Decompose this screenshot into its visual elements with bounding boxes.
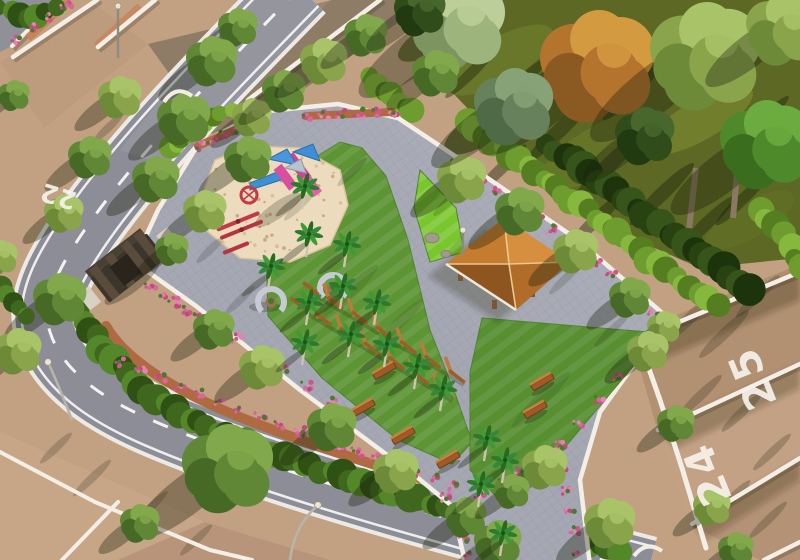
circle-shape [375, 300, 379, 304]
circle-shape [183, 104, 199, 120]
circle-shape [353, 114, 356, 117]
circle-shape [736, 539, 747, 550]
circle-shape [303, 340, 307, 344]
circle-shape [561, 486, 564, 489]
circle-shape [371, 454, 374, 457]
circle-shape [118, 364, 122, 368]
circle-shape [195, 392, 198, 395]
circle-shape [576, 238, 590, 252]
circle-shape [605, 273, 608, 276]
circle-shape [227, 442, 255, 470]
circle-shape [234, 408, 237, 411]
circle-shape [262, 354, 276, 368]
circle-shape [630, 285, 643, 298]
circle-shape [601, 397, 607, 403]
circle-shape [63, 7, 67, 11]
circle-shape [303, 184, 307, 188]
circle-shape [479, 482, 483, 486]
circle-shape [14, 86, 24, 96]
circle-shape [271, 194, 275, 198]
circle-shape [182, 305, 186, 309]
circle-shape [248, 146, 262, 160]
circle-shape [307, 300, 311, 304]
circle-shape [235, 214, 239, 218]
scene-svg: 22 25 24 [0, 0, 800, 560]
circle-shape [191, 143, 194, 146]
circle-shape [374, 113, 379, 118]
circle-shape [644, 119, 662, 137]
circle-shape [676, 413, 687, 424]
circle-shape [257, 416, 261, 420]
circle-shape [352, 449, 355, 452]
circle-shape [375, 452, 380, 457]
circle-shape [162, 378, 168, 384]
circle-shape [391, 110, 396, 115]
circle-shape [239, 335, 244, 340]
circle-shape [561, 492, 564, 495]
circle-shape [650, 311, 654, 315]
circle-shape [302, 425, 307, 430]
circle-shape [114, 361, 117, 364]
circle-shape [415, 364, 419, 368]
circle-shape [460, 227, 466, 233]
circle-shape [284, 369, 289, 374]
circle-shape [157, 373, 161, 377]
circle-shape [263, 238, 267, 242]
circle-shape [706, 293, 730, 317]
circle-shape [64, 3, 68, 7]
circle-shape [568, 529, 571, 532]
circle-shape [270, 233, 273, 236]
circle-shape [512, 481, 523, 492]
circle-shape [280, 426, 285, 431]
circle-shape [485, 436, 489, 440]
circle-shape [18, 338, 32, 352]
circle-shape [142, 368, 148, 374]
circle-shape [156, 166, 170, 180]
circle-shape [440, 494, 443, 497]
circle-shape [120, 85, 133, 98]
circle-shape [436, 60, 450, 74]
circle-shape [377, 109, 382, 114]
circle-shape [158, 294, 162, 298]
circle-shape [545, 454, 559, 468]
circle-shape [296, 431, 300, 435]
circle-shape [117, 360, 121, 364]
circle-shape [304, 112, 308, 116]
circle-shape [597, 397, 601, 401]
circle-shape [45, 17, 49, 21]
circle-shape [253, 412, 256, 415]
circle-shape [307, 232, 311, 236]
circle-shape [303, 386, 307, 390]
circle-shape [577, 420, 581, 424]
circle-shape [273, 420, 276, 423]
circle-shape [444, 497, 449, 502]
circle-shape [447, 482, 450, 485]
circle-shape [441, 386, 445, 390]
circle-shape [308, 116, 313, 121]
circle-shape [385, 342, 389, 346]
circle-shape [321, 161, 325, 165]
circle-shape [331, 175, 335, 179]
circle-shape [144, 286, 147, 289]
circle-shape [341, 284, 345, 288]
circle-shape [263, 201, 266, 204]
circle-shape [161, 372, 166, 377]
rect-shape [492, 300, 497, 309]
circle-shape [300, 381, 303, 384]
circle-shape [359, 453, 364, 458]
circle-shape [332, 172, 335, 175]
circle-shape [350, 446, 353, 449]
circle-shape [564, 508, 567, 511]
circle-shape [447, 488, 450, 491]
circle-shape [360, 106, 366, 112]
circle-shape [493, 186, 497, 190]
circle-shape [733, 273, 766, 306]
circle-shape [115, 3, 121, 9]
circle-shape [193, 312, 197, 316]
circle-shape [664, 318, 674, 328]
circle-shape [136, 369, 140, 373]
circle-shape [430, 479, 434, 483]
circle-shape [206, 141, 210, 145]
circle-shape [59, 4, 62, 7]
circle-shape [268, 298, 274, 304]
circle-shape [182, 311, 186, 315]
circle-shape [212, 106, 228, 122]
circle-shape [60, 7, 63, 10]
circle-shape [167, 300, 170, 303]
circle-shape [560, 440, 565, 445]
circle-shape [594, 395, 598, 399]
circle-shape [264, 250, 267, 253]
circle-shape [302, 113, 306, 117]
circle-shape [195, 146, 199, 150]
circle-shape [296, 219, 298, 221]
circle-shape [223, 193, 226, 196]
circle-shape [288, 249, 290, 251]
circle-shape [59, 284, 75, 300]
circle-shape [265, 235, 269, 239]
circle-shape [30, 28, 34, 32]
circle-shape [322, 214, 325, 217]
circle-shape [572, 525, 576, 529]
circle-shape [572, 422, 575, 425]
circle-shape [332, 413, 347, 428]
circle-shape [172, 240, 182, 250]
circle-shape [261, 414, 266, 419]
circle-shape [609, 508, 625, 524]
circle-shape [462, 165, 477, 180]
circle-shape [144, 282, 147, 285]
circle-shape [269, 264, 273, 268]
circle-shape [611, 274, 615, 278]
circle-shape [464, 539, 469, 544]
circle-shape [340, 114, 345, 119]
rock [425, 233, 439, 243]
circle-shape [345, 242, 349, 246]
circle-shape [253, 243, 257, 247]
circle-shape [282, 246, 286, 250]
circle-shape [140, 512, 152, 524]
circle-shape [565, 489, 570, 494]
circle-shape [48, 18, 52, 22]
circle-shape [315, 165, 318, 168]
circle-shape [322, 199, 325, 202]
circle-shape [175, 385, 178, 388]
circle-shape [765, 118, 793, 146]
circle-shape [147, 286, 151, 290]
circle-shape [434, 472, 439, 477]
circle-shape [237, 406, 241, 410]
circle-shape [319, 115, 323, 119]
circle-shape [154, 376, 157, 379]
circle-shape [336, 112, 339, 115]
circle-shape [45, 359, 52, 366]
circle-shape [234, 332, 238, 336]
circle-shape [17, 35, 22, 40]
circle-shape [14, 41, 18, 45]
circle-shape [326, 115, 332, 121]
circle-shape [597, 33, 632, 68]
circle-shape [330, 396, 335, 401]
circle-shape [245, 221, 247, 223]
circle-shape [171, 296, 175, 300]
circle-shape [29, 25, 33, 29]
circle-shape [315, 502, 322, 509]
circle-shape [214, 317, 227, 330]
circle-shape [10, 39, 13, 42]
circle-shape [339, 201, 342, 204]
circle-shape [342, 108, 347, 113]
circle-shape [134, 371, 137, 374]
circle-shape [197, 395, 201, 399]
circle-shape [349, 332, 353, 336]
circle-shape [554, 440, 557, 443]
circle-shape [200, 388, 205, 393]
circle-shape [501, 531, 505, 535]
circle-shape [515, 467, 518, 470]
rock [441, 251, 451, 258]
circle-shape [396, 458, 410, 472]
circle-shape [90, 145, 103, 158]
circle-shape [211, 46, 227, 62]
circle-shape [293, 173, 295, 175]
aerial-site-render: 22 25 24 [0, 0, 800, 560]
circle-shape [179, 383, 183, 387]
circle-shape [307, 387, 312, 392]
circle-shape [242, 232, 246, 236]
circle-shape [369, 457, 372, 460]
circle-shape [238, 16, 250, 28]
circle-shape [594, 401, 598, 405]
circle-shape [493, 191, 497, 195]
circle-shape [121, 356, 126, 361]
circle-shape [371, 108, 375, 112]
circle-shape [356, 450, 360, 454]
circle-shape [294, 428, 297, 431]
circle-shape [321, 110, 325, 114]
circle-shape [503, 458, 507, 462]
circle-shape [308, 380, 313, 385]
circle-shape [514, 471, 517, 474]
circle-shape [174, 304, 179, 309]
circle-shape [249, 241, 251, 243]
circle-shape [454, 481, 459, 486]
circle-shape [648, 339, 661, 352]
circle-shape [205, 199, 218, 212]
circle-shape [0, 247, 10, 258]
circle-shape [440, 499, 443, 502]
circle-shape [572, 509, 577, 514]
circle-shape [551, 223, 556, 228]
circle-shape [275, 244, 279, 248]
circle-shape [234, 337, 238, 341]
circle-shape [520, 197, 535, 212]
circle-shape [359, 112, 364, 117]
circle-shape [570, 531, 574, 535]
circle-shape [545, 232, 548, 235]
circle-shape [45, 14, 49, 18]
circle-shape [513, 84, 537, 108]
